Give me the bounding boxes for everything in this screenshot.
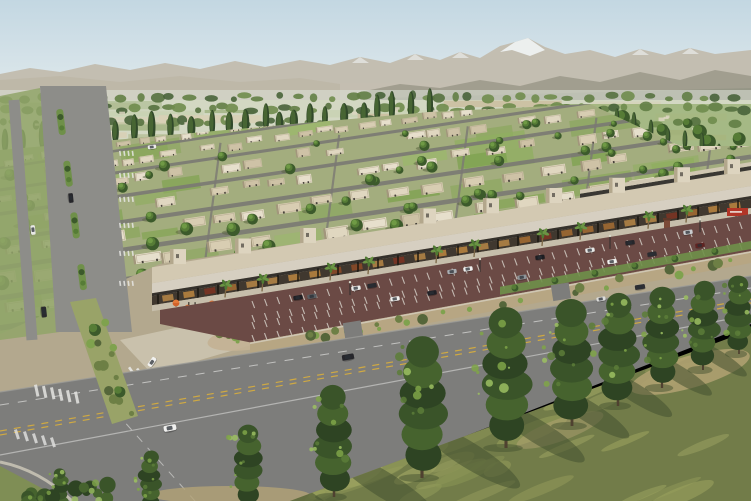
rendering-image [0,0,751,501]
aerial-scene [0,0,751,501]
